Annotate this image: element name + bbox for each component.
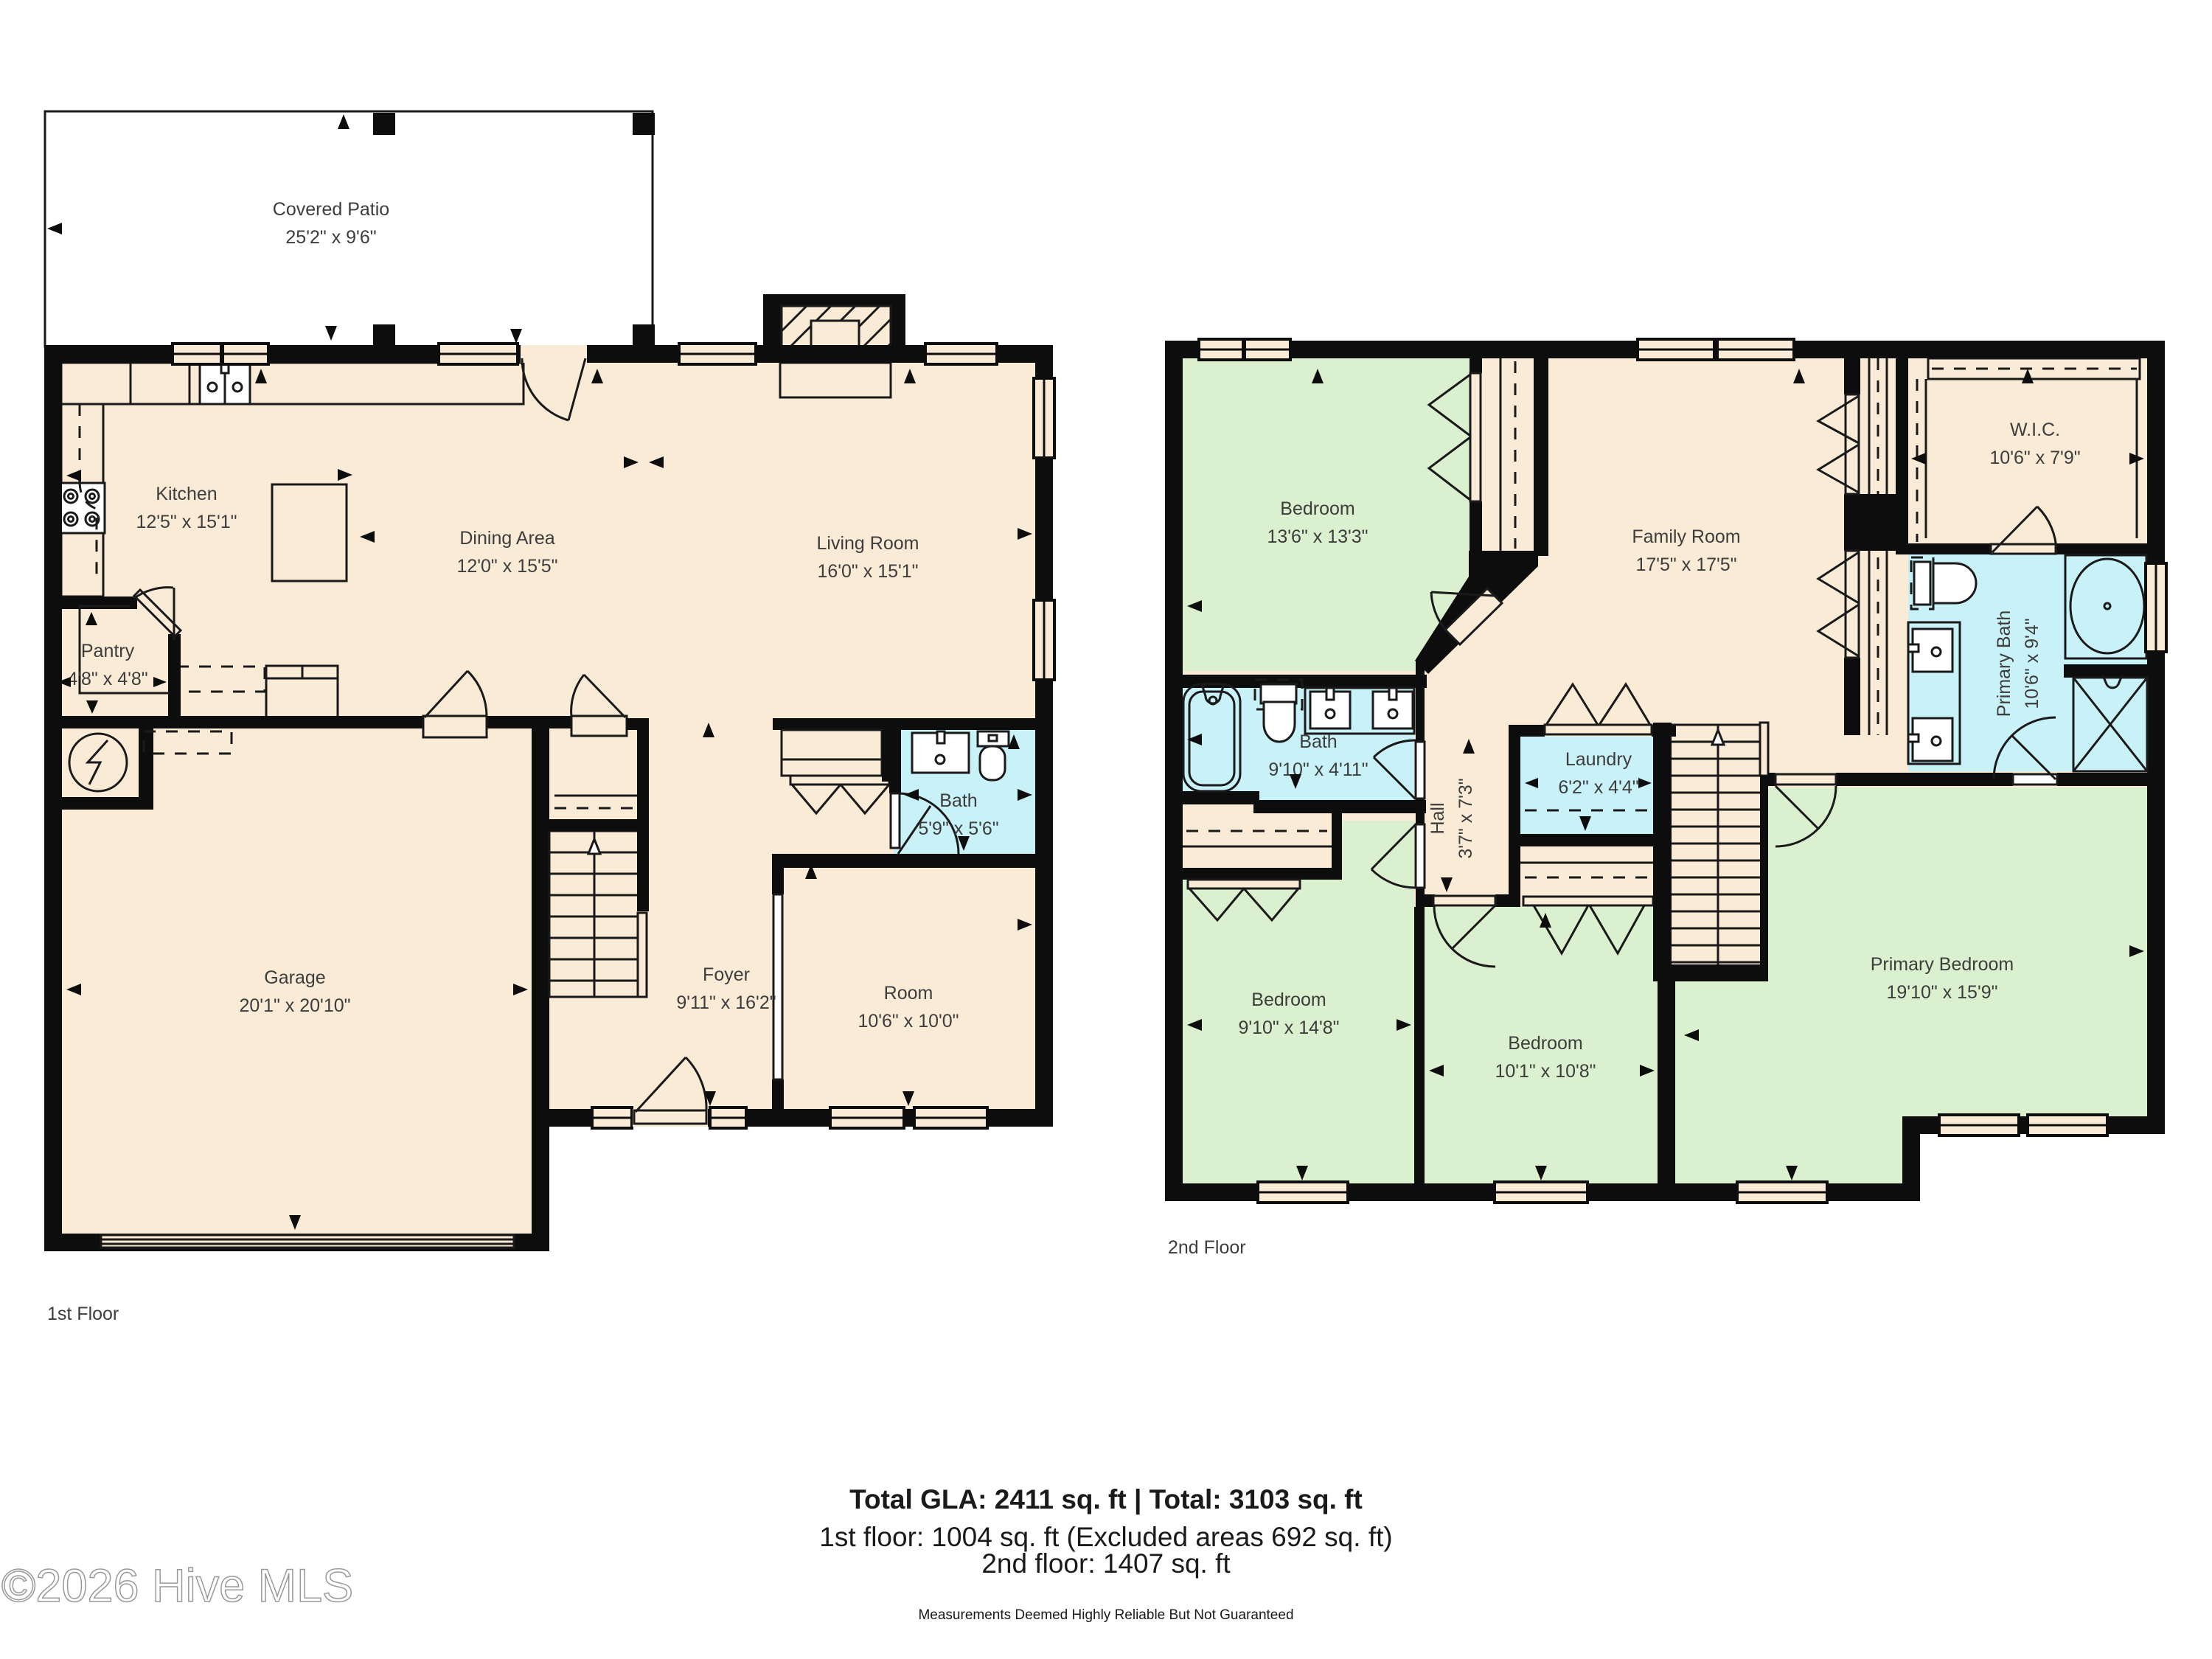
svg-text:1st Floor: 1st Floor [47,1304,119,1324]
svg-text:16'0" x 15'1": 16'0" x 15'1" [817,561,918,582]
svg-text:10'1" x 10'8": 10'1" x 10'8" [1495,1061,1596,1082]
svg-text:W.I.C.: W.I.C. [2010,420,2060,440]
svg-text:10'6" x 9'4": 10'6" x 9'4" [2022,618,2042,709]
svg-text:Hall: Hall [1427,802,1448,834]
svg-text:10'6" x 10'0": 10'6" x 10'0" [858,1011,959,1032]
svg-text:25'2" x 9'6": 25'2" x 9'6" [285,227,376,248]
svg-text:Primary Bath: Primary Bath [1994,611,2014,717]
svg-text:Bedroom: Bedroom [1280,498,1354,519]
svg-text:6'2" x 4'4": 6'2" x 4'4" [1558,777,1638,798]
svg-text:Total GLA: 2411 sq. ft | Total: Total GLA: 2411 sq. ft | Total: 3103 sq.… [849,1484,1363,1515]
svg-text:Laundry: Laundry [1565,749,1632,770]
svg-text:17'5" x 17'5": 17'5" x 17'5" [1635,554,1736,575]
svg-text:©2026 Hive MLS: ©2026 Hive MLS [1,1560,353,1612]
svg-text:10'6" x 7'9": 10'6" x 7'9" [1989,448,2080,468]
svg-text:5'9" x 5'6": 5'9" x 5'6" [918,818,998,839]
svg-text:2nd floor: 1407 sq. ft: 2nd floor: 1407 sq. ft [981,1548,1231,1579]
svg-text:3'7" x 7'3": 3'7" x 7'3" [1455,778,1476,858]
svg-text:Foyer: Foyer [703,964,750,985]
svg-text:Bedroom: Bedroom [1508,1033,1582,1054]
svg-text:Bath: Bath [1299,731,1337,752]
svg-text:9'11" x 16'2": 9'11" x 16'2" [676,992,776,1013]
svg-text:Room: Room [884,983,933,1004]
svg-text:4'8" x 4'8": 4'8" x 4'8" [67,669,147,689]
svg-text:2nd Floor: 2nd Floor [1168,1237,1246,1258]
svg-text:9'10" x 14'8": 9'10" x 14'8" [1238,1018,1339,1038]
svg-text:13'6" x 13'3": 13'6" x 13'3" [1267,526,1368,547]
svg-text:Bedroom: Bedroom [1251,990,1326,1010]
svg-text:9'10" x 4'11": 9'10" x 4'11" [1268,759,1368,780]
svg-text:20'1" x 20'10": 20'1" x 20'10" [239,995,350,1016]
svg-text:Covered Patio: Covered Patio [273,199,389,220]
svg-text:Garage: Garage [264,967,325,988]
svg-text:Living Room: Living Room [817,533,919,554]
svg-text:Family Room: Family Room [1632,526,1740,547]
svg-text:Pantry: Pantry [81,641,135,661]
svg-text:Measurements Deemed Highly Rel: Measurements Deemed Highly Reliable But … [918,1607,1293,1623]
svg-text:Primary Bedroom: Primary Bedroom [1871,954,2014,975]
svg-text:Dining Area: Dining Area [459,528,554,549]
svg-text:Kitchen: Kitchen [156,484,217,504]
svg-text:1st floor: 1004 sq. ft (Exclud: 1st floor: 1004 sq. ft (Excluded areas 6… [819,1522,1392,1552]
svg-text:12'0" x 15'5": 12'0" x 15'5" [456,556,557,577]
svg-text:19'10" x 15'9": 19'10" x 15'9" [1886,982,1997,1003]
svg-text:12'5" x 15'1": 12'5" x 15'1" [136,512,237,532]
svg-text:Bath: Bath [939,790,977,811]
